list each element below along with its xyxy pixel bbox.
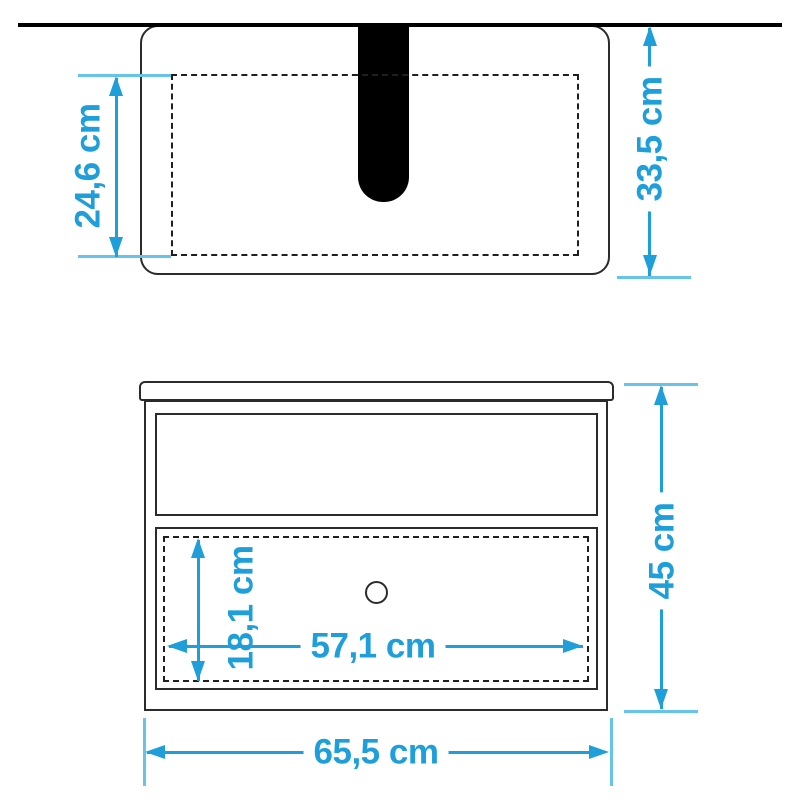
arrowhead-down-icon [654, 689, 668, 709]
dimension-label-45: 45 cm [643, 493, 682, 610]
front-view-shelf-opening [155, 413, 598, 516]
dimension-line [197, 540, 200, 681]
arrowhead-left-icon [167, 639, 187, 653]
extension-line [624, 710, 698, 713]
arrowhead-up-icon [654, 385, 668, 405]
dimension-drawing-canvas: 24,6 cm 33,5 cm 18,1 cm 57,1 cm 45 cm [0, 0, 800, 800]
arrowhead-right-icon [563, 639, 583, 653]
arrowhead-up-icon [109, 76, 123, 96]
extension-line [617, 276, 691, 279]
arrowhead-left-icon [145, 745, 165, 759]
arrowhead-down-icon [191, 661, 205, 681]
arrowhead-right-icon [589, 745, 609, 759]
extension-line [610, 718, 613, 786]
arrowhead-up-icon [191, 538, 205, 558]
arrowhead-up-icon [643, 26, 657, 46]
extension-line [78, 74, 171, 77]
dimension-line [115, 78, 118, 257]
arrowhead-down-icon [109, 237, 123, 257]
extension-line [78, 255, 171, 258]
dimension-label-18-1: 18,1 cm [224, 546, 259, 671]
arrowhead-down-icon [643, 255, 657, 275]
top-view-inner-dashed-outline [171, 74, 579, 256]
drawer-knob-hole [365, 581, 388, 604]
dimension-label-57-1: 57,1 cm [301, 627, 446, 666]
dimension-label-24-6: 24,6 cm [71, 104, 106, 229]
front-view-top-board [139, 381, 614, 401]
dimension-label-33-5: 33,5 cm [631, 67, 670, 212]
dimension-label-65-5: 65,5 cm [304, 733, 449, 772]
